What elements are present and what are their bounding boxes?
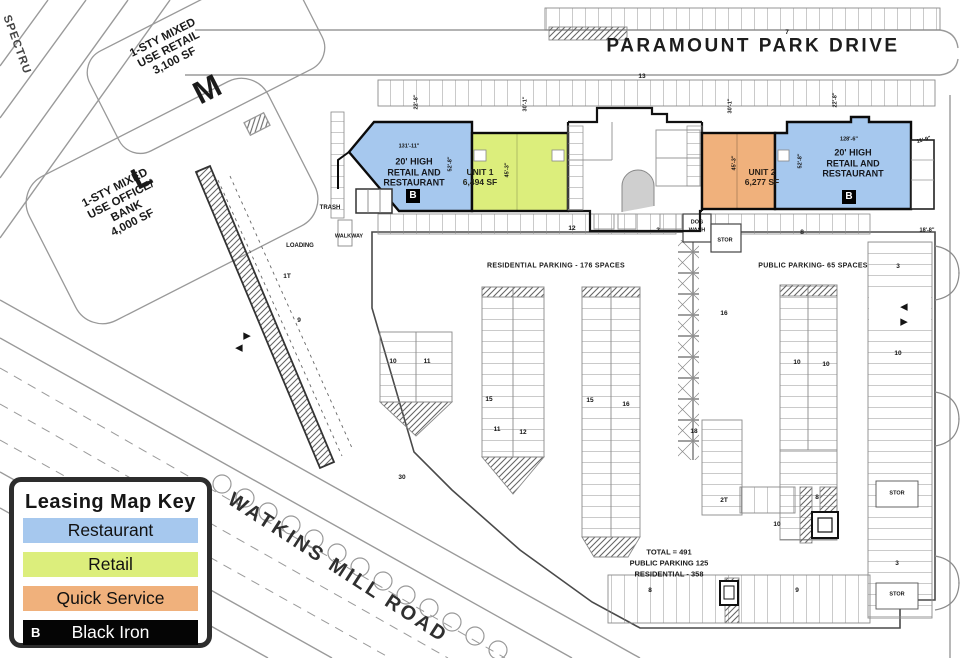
legend-item-label: Black Iron: [72, 622, 150, 643]
unit-name: UNIT 1: [463, 167, 498, 177]
residential-parking-label: RESIDENTIAL PARKING - 176 SPACES: [487, 263, 625, 270]
unit-area: 6,494 SF: [463, 177, 498, 187]
legend-item-restaurant: Restaurant: [23, 518, 198, 543]
unit-line: RESTAURANT: [822, 168, 883, 179]
stall-count: 30: [398, 475, 405, 482]
dimension-label: 30'-1": [728, 99, 734, 114]
dimension-label: 22'-8": [833, 93, 839, 108]
black-iron-badge: B: [31, 625, 40, 640]
dog-wash-label: DOG: [691, 220, 704, 226]
stall-count: 9: [795, 588, 799, 595]
stall-count: 3: [896, 264, 900, 271]
stall-count: 12: [568, 226, 575, 233]
unit-area: 6,277 SF: [745, 177, 780, 187]
stall-count: 3: [895, 561, 899, 568]
legend-item-black-iron: BBlack Iron: [23, 620, 198, 645]
unit-restaurant-right-label: 20' HIGH RETAIL AND RESTAURANT: [822, 147, 883, 179]
black-iron-badge-left: B: [406, 189, 420, 203]
dog-wash-label: WASH: [689, 228, 706, 234]
dimension-label: 52'-8": [448, 157, 454, 172]
stall-count: 12: [519, 430, 526, 437]
stall-count: 10: [793, 360, 800, 367]
unit-restaurant-left-label: 20' HIGH RETAIL AND RESTAURANT: [383, 156, 444, 188]
unit-line: RETAIL AND: [383, 167, 444, 178]
stall-count: 16: [720, 311, 727, 318]
unit-line: 20' HIGH: [822, 147, 883, 158]
direction-arrow: ◀: [901, 303, 908, 312]
totals-line: TOTAL = 491: [630, 547, 709, 558]
stall-count: 8: [800, 230, 804, 237]
unit-line: 20' HIGH: [383, 156, 444, 167]
legend-item-quick-service: Quick Service: [23, 586, 198, 611]
unit-line: RESTAURANT: [383, 177, 444, 188]
legend-item-retail: Retail: [23, 552, 198, 577]
leasing-map-key: Leasing Map Key RestaurantRetailQuick Se…: [9, 477, 212, 648]
unit-1-label: UNIT 1 6,494 SF: [463, 167, 498, 187]
dimension-label: 131'-11": [399, 144, 420, 150]
stall-count: 13: [638, 74, 645, 81]
stall-count: 9: [297, 318, 301, 325]
black-iron-badge-right: B: [842, 190, 856, 204]
stall-count: 10: [822, 362, 829, 369]
stall-count: 8: [648, 588, 652, 595]
stall-count: 11: [494, 427, 501, 434]
stall-count: 10: [389, 359, 396, 366]
stall-count: 15: [485, 397, 492, 404]
public-parking-label: PUBLIC PARKING- 65 SPACES: [758, 263, 868, 270]
totals-line: RESIDENTIAL - 358: [630, 569, 709, 580]
walkway-label: WALKWAY: [335, 234, 363, 240]
legend-item-label: Retail: [88, 554, 133, 575]
loading-label: LOADING: [286, 243, 314, 249]
direction-arrow: ◀: [236, 344, 243, 353]
dimension-label: 45'-3": [732, 156, 738, 171]
stall-count: 3: [656, 228, 660, 235]
trash-label: TRASH: [320, 205, 341, 211]
unit-2-label: UNIT 2 6,277 SF: [745, 167, 780, 187]
legend-title: Leasing Map Key: [23, 491, 198, 514]
leasing-site-plan: PARAMOUNT PARK DRIVE WATKINS MILL ROAD S…: [0, 0, 963, 658]
unit-line: RETAIL AND: [822, 158, 883, 169]
stall-count: 18: [690, 429, 697, 436]
stall-count: 10: [773, 522, 780, 529]
dimension-label: 128'-6": [840, 137, 858, 143]
stall-count: 10: [894, 351, 901, 358]
storage-label: STOR: [717, 238, 732, 244]
stall-count: 16: [622, 402, 629, 409]
dimension-label: 45'-3": [505, 163, 511, 178]
legend-item-label: Restaurant: [68, 520, 154, 541]
stall-count: 7: [785, 30, 789, 37]
storage-label: STOR: [889, 491, 904, 497]
dimension-label: 18'-8": [920, 228, 935, 234]
dimension-label: 30'-1": [523, 97, 529, 112]
dimension-label: 52'-8": [798, 154, 804, 169]
stall-count: 8: [815, 495, 819, 502]
legend-item-label: Quick Service: [57, 588, 165, 609]
storage-label: STOR: [889, 592, 904, 598]
direction-arrow: ▶: [901, 318, 908, 327]
stall-count: 11: [424, 359, 431, 366]
parking-totals: TOTAL = 491 PUBLIC PARKING 125 RESIDENTI…: [630, 547, 709, 580]
unit-name: UNIT 2: [745, 167, 780, 177]
stall-count: 2T: [720, 498, 728, 505]
legend-items: RestaurantRetailQuick ServiceBBlack Iron: [23, 518, 198, 645]
stall-count: 15: [586, 398, 593, 405]
stall-count: 1T: [283, 274, 291, 281]
totals-line: PUBLIC PARKING 125: [630, 558, 709, 569]
dimension-label: 22'-8": [414, 95, 420, 110]
direction-arrow: ▶: [244, 332, 251, 341]
road-label-paramount-park-drive: PARAMOUNT PARK DRIVE: [606, 37, 899, 56]
